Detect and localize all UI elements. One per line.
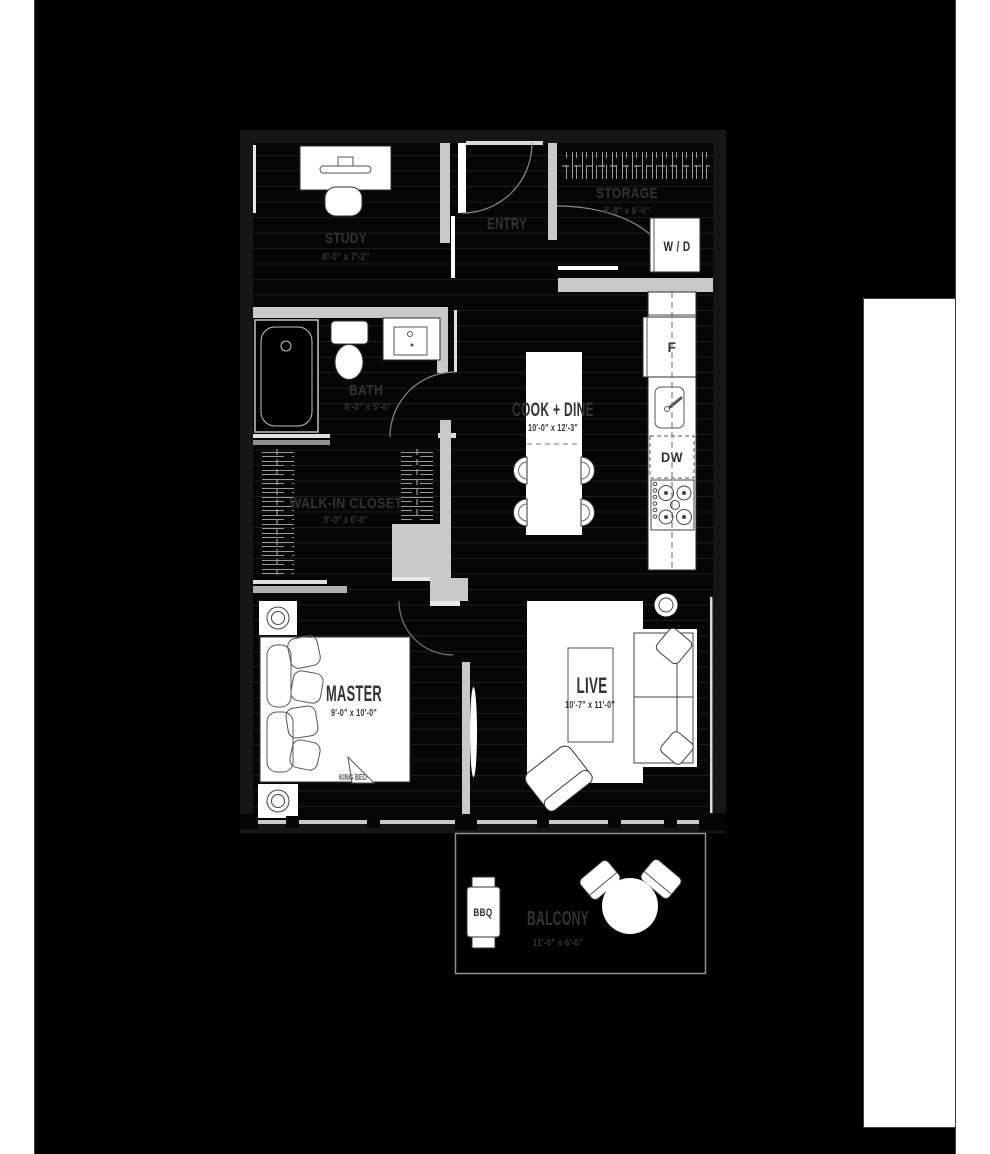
closet-dims: 8'-0" x 6'-0" bbox=[324, 515, 368, 526]
master-dims: 9'-0" x 10'-0" bbox=[331, 707, 377, 719]
storage-label: STORAGE bbox=[596, 185, 658, 202]
study-label: STUDY bbox=[325, 230, 367, 247]
entry-door-jamb bbox=[451, 216, 455, 278]
floorplan-page: STUDY 8'-0" x 7'-2" ENTRY STORAGE 6'-8" … bbox=[0, 0, 990, 1154]
study-dims: 8'-0" x 7'-2" bbox=[323, 252, 370, 263]
hall-wall-block-2 bbox=[430, 578, 468, 601]
entry-door-panel bbox=[458, 143, 466, 213]
vanity-drain bbox=[411, 344, 414, 347]
sofa bbox=[630, 626, 697, 767]
desk-monitor bbox=[320, 166, 371, 173]
bbq-label: BBQ bbox=[474, 907, 493, 919]
floorplan-drawing: STUDY 8'-0" x 7'-2" ENTRY STORAGE 6'-8" … bbox=[0, 0, 990, 1154]
balcony-table bbox=[602, 878, 658, 934]
page-margin-right-block bbox=[863, 298, 957, 1127]
pocket-door-panel bbox=[470, 687, 477, 777]
bath-label: BATH bbox=[349, 382, 383, 399]
vanity bbox=[383, 318, 440, 360]
balcony-dims: 11'-0" x 6'-6" bbox=[533, 938, 583, 949]
bathtub bbox=[255, 320, 318, 432]
window-glass-line bbox=[253, 820, 713, 824]
master-door-header bbox=[430, 601, 460, 606]
closet-east-wall-stub bbox=[440, 420, 451, 524]
storage-south-wall bbox=[558, 278, 713, 292]
balcony-label: BALCONY bbox=[527, 908, 589, 930]
cook-dine-label: COOK + DINE bbox=[512, 400, 594, 421]
bath-north-wall bbox=[253, 307, 448, 318]
entry-closet-wall-stub bbox=[548, 143, 557, 240]
page-margin-right bbox=[956, 0, 990, 1154]
live-east-wall-face bbox=[710, 597, 713, 818]
bath-south-wall-face bbox=[253, 434, 330, 438]
cook-dine-dims: 10'-0" x 12'-3" bbox=[528, 422, 578, 434]
page-margin-left bbox=[0, 0, 34, 1154]
storage-dims: 6'-8" x 6'-0" bbox=[604, 206, 650, 217]
closet-hangers-left bbox=[262, 448, 294, 576]
closet-label: WALK-IN CLOSET bbox=[290, 495, 403, 512]
closet-south-wall bbox=[253, 586, 347, 593]
toilet-bowl bbox=[335, 345, 363, 380]
desk-chair bbox=[325, 187, 362, 216]
toilet-tank bbox=[331, 321, 368, 344]
master-label: MASTER bbox=[326, 681, 382, 706]
hall-wall-face bbox=[392, 577, 430, 581]
closet-south-wall-face bbox=[253, 580, 327, 584]
washer-dryer-label: W / D bbox=[664, 239, 691, 254]
bath-south-wall bbox=[253, 440, 330, 445]
bath-dims: 8'-0" x 5'-8" bbox=[345, 402, 392, 413]
entry-wall-stub bbox=[440, 143, 450, 243]
live-label: LIVE bbox=[577, 673, 608, 698]
entry-header-line bbox=[558, 266, 618, 270]
master-live-wall bbox=[462, 662, 470, 819]
wall-face-line bbox=[253, 145, 256, 213]
king-bed-label: KING BED bbox=[339, 772, 367, 782]
entry-label: ENTRY bbox=[487, 216, 527, 233]
kitchen-bath-wall-face bbox=[454, 310, 457, 372]
desk-monitor-base bbox=[338, 157, 353, 166]
hall-wall-block bbox=[392, 524, 451, 581]
live-dims: 10'-7" x 11'-0" bbox=[565, 699, 615, 711]
